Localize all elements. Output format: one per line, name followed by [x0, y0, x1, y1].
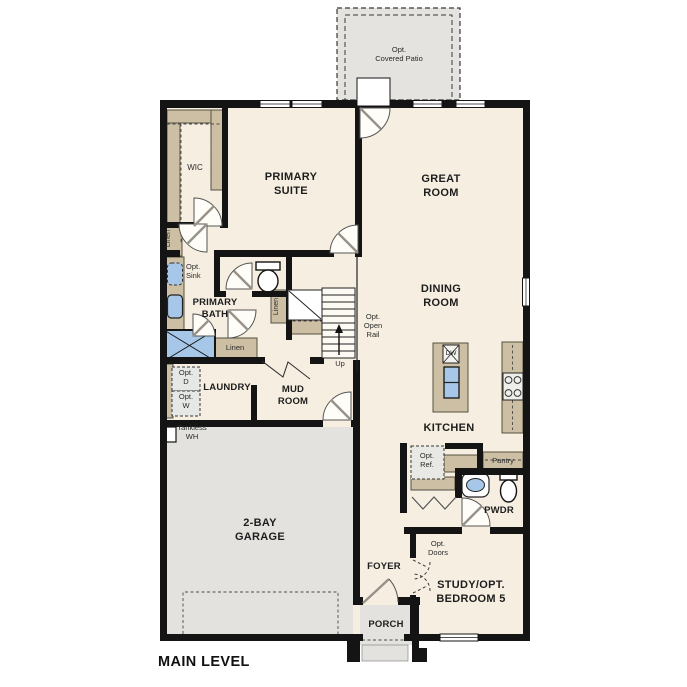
wall-pwdr-left — [455, 468, 462, 498]
wall-foyer-bottom-a — [353, 597, 363, 605]
bath-toilet-tank — [256, 262, 280, 270]
porch-pillar-right-base — [412, 648, 427, 662]
patio-door-landing — [357, 78, 390, 106]
label-foyer: FOYER — [367, 561, 401, 573]
label-dining-room: DININGROOM — [421, 282, 461, 311]
wall-suite-bottom-a — [160, 250, 180, 257]
label-pwdr: PWDR — [484, 505, 514, 517]
wall-right — [523, 100, 530, 641]
wall-study-top-a — [404, 527, 462, 534]
label-great-room: GREATROOM — [421, 172, 460, 201]
label-covered-patio: Opt.Covered Patio — [375, 46, 423, 64]
wall-left — [160, 100, 167, 641]
pwdr-toilet-bowl — [501, 480, 517, 502]
tankless-water-heater — [166, 427, 176, 442]
label-primary-suite: PRIMARYSUITE — [265, 170, 317, 199]
porch-pillar-left — [347, 634, 360, 662]
floor-plan-drawing — [0, 0, 687, 687]
label-study: STUDY/OPT.BEDROOM 5 — [436, 578, 505, 607]
label-wic: WIC — [187, 163, 203, 172]
label-pantry: Pantry — [492, 457, 514, 466]
label-dw: DW — [446, 350, 457, 357]
wall-study-left-b — [410, 595, 416, 634]
label-porch: PORCH — [368, 619, 403, 631]
floor-plan: Opt.Covered Patio WIC PRIMARYSUITE GREAT… — [0, 0, 687, 687]
bath-sink-fixture — [168, 295, 183, 318]
label-mud-room: MUDROOM — [278, 384, 308, 408]
understair-shelf — [287, 320, 322, 334]
label-garage: 2-BAYGARAGE — [235, 516, 285, 545]
label-linen-left: Linen — [165, 230, 172, 247]
label-tankless-wh: TanklessWH — [177, 424, 206, 442]
bath-toilet-bowl — [258, 270, 278, 292]
label-opt-open-rail: Opt.OpenRail — [364, 313, 382, 340]
label-opt-washer: Opt.W — [179, 393, 193, 411]
wall-study-top-b — [490, 527, 530, 534]
wall-study-left-a — [410, 534, 416, 558]
page-title: MAIN LEVEL — [158, 654, 250, 670]
label-laundry: LAUNDRY — [203, 382, 251, 394]
wall-pwdr-top — [455, 468, 530, 475]
wall-bath-bottom — [160, 357, 265, 364]
wall-suite-bottom-b — [214, 250, 334, 257]
wall-garage-bottom — [160, 634, 363, 641]
pwdr-sink-basin — [467, 479, 485, 492]
label-opt-sink: Opt.Sink — [186, 263, 201, 281]
wall-wic-right — [222, 100, 228, 228]
wall-hall-right — [400, 443, 407, 513]
opt-sink-fixture — [168, 263, 183, 285]
label-kitchen: KITCHEN — [424, 421, 475, 435]
label-opt-dryer: Opt.D — [179, 369, 193, 387]
wall-mud-garage-right — [353, 360, 360, 597]
label-linen-stairs: Linen — [273, 298, 280, 315]
label-opt-ref: Opt.Ref. — [420, 452, 434, 470]
porch-step — [362, 645, 408, 661]
label-linen-hall: Linen — [226, 344, 244, 353]
label-up: Up — [335, 360, 345, 369]
label-opt-doors: Opt.Doors — [428, 540, 448, 558]
label-primary-bath: PRIMARYBATH — [193, 297, 238, 321]
